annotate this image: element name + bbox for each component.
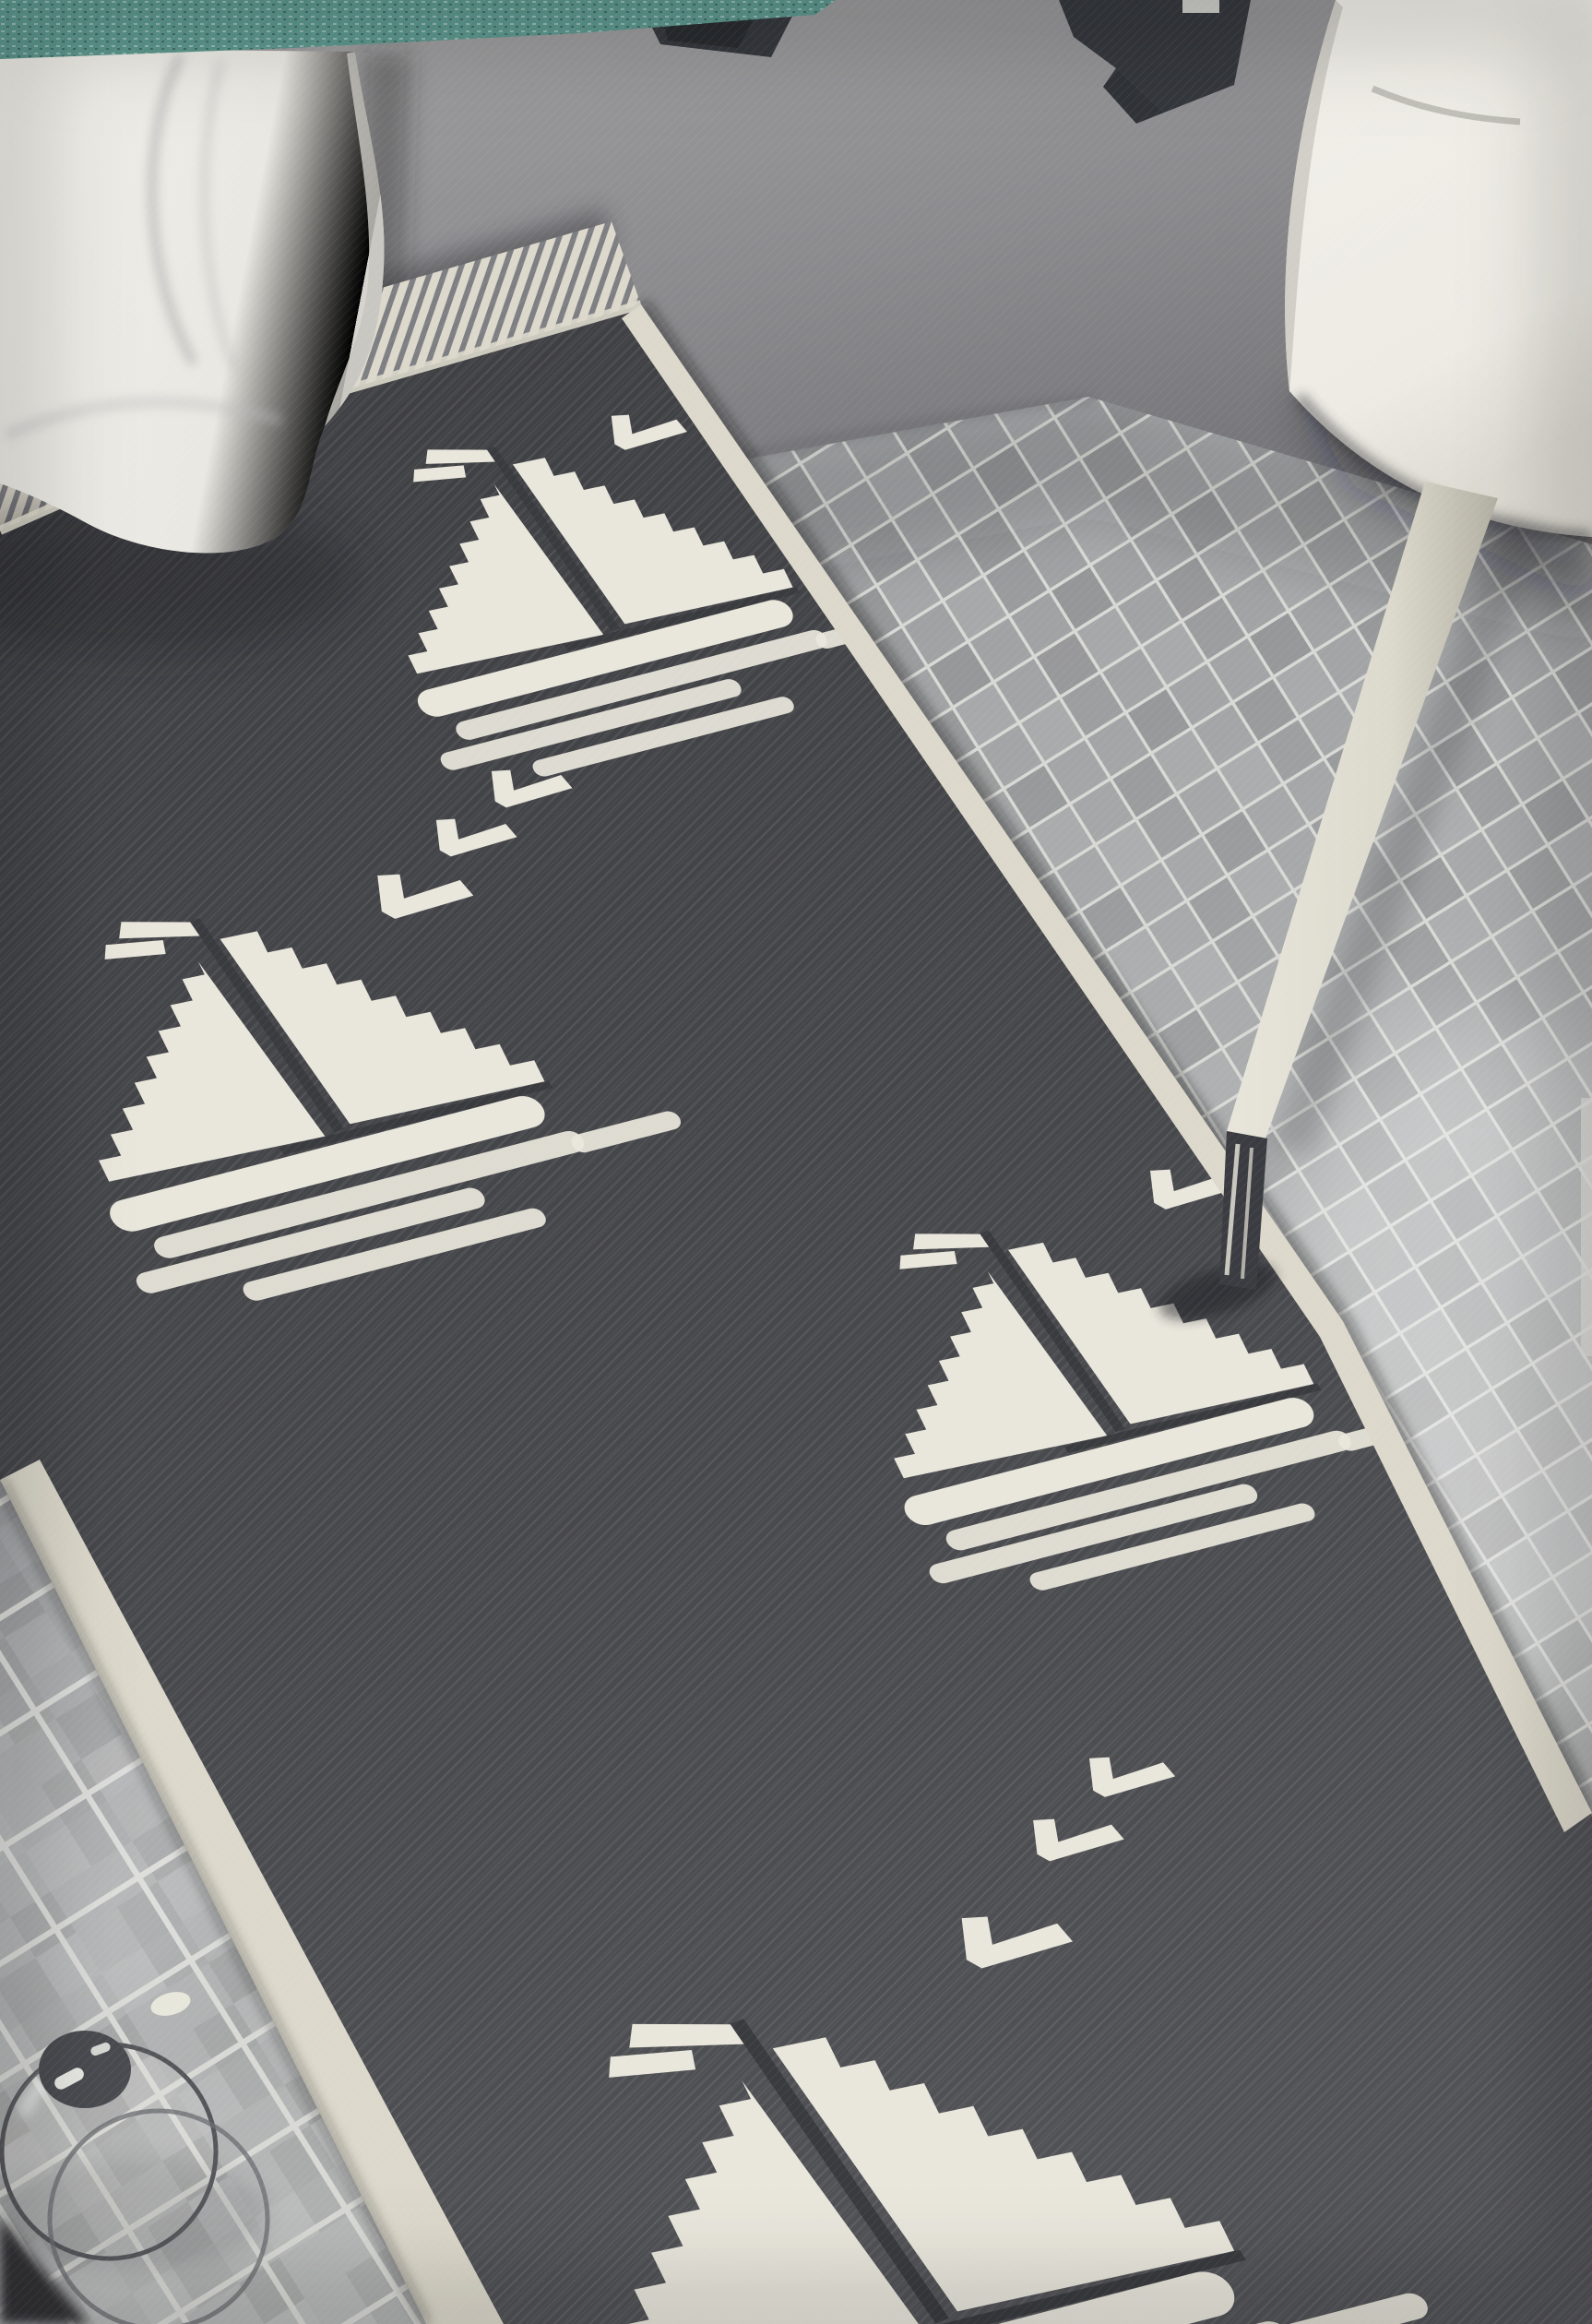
photo-canvas — [0, 0, 1592, 2324]
photo-sailboat-rug: Vintage black-and-white photograph: a lo… — [0, 0, 1592, 2324]
photo-grain — [0, 0, 1592, 2324]
